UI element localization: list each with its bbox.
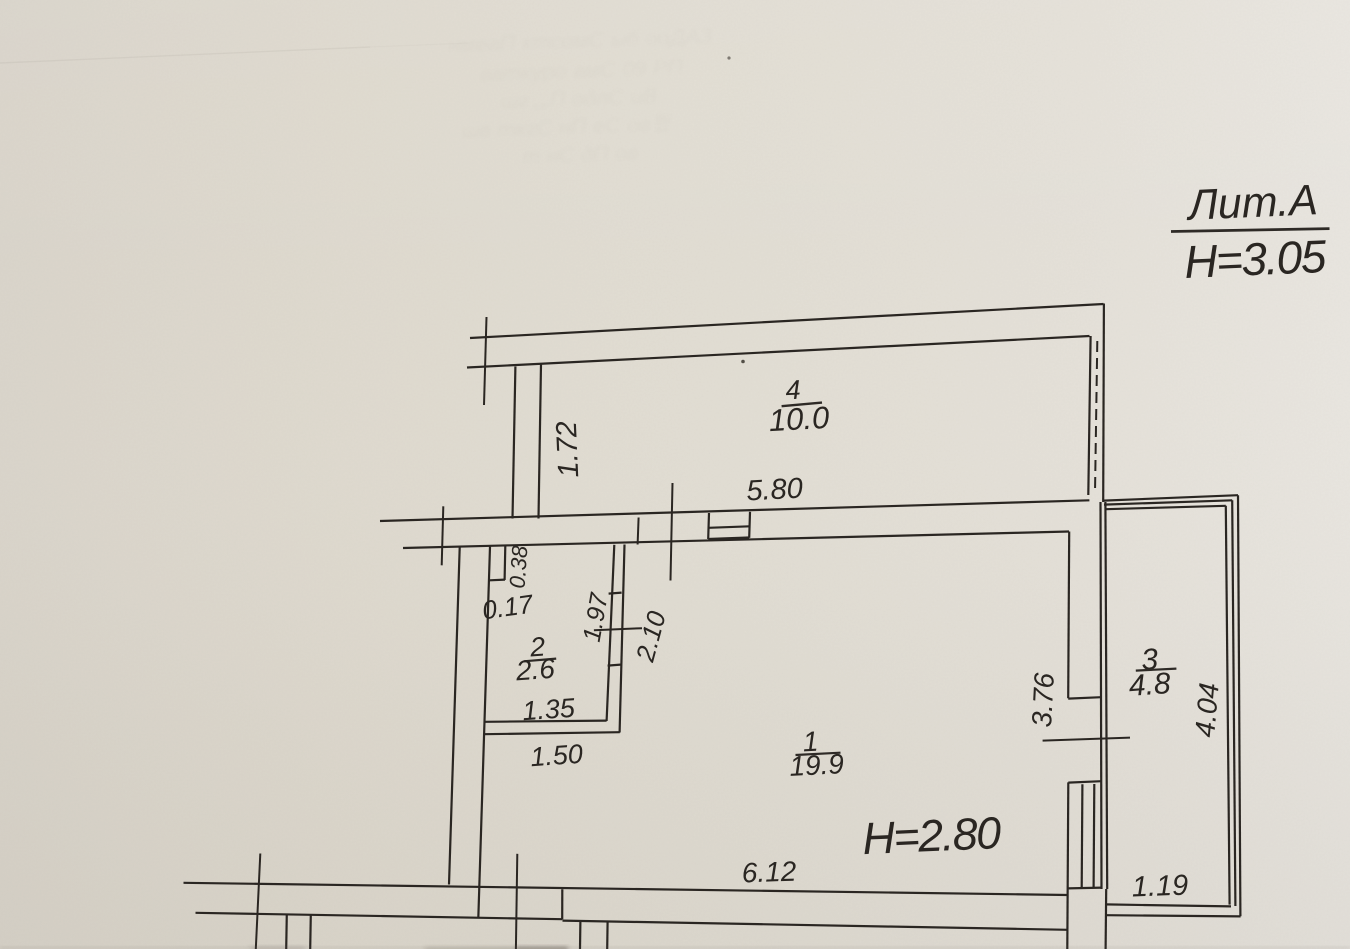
svg-text:4.04: 4.04 <box>1189 682 1225 739</box>
svg-text:0.38: 0.38 <box>505 544 533 589</box>
svg-text:19.9: 19.9 <box>789 748 845 782</box>
svg-text:т нС дП ов: т нС дП ов <box>522 140 639 169</box>
svg-text:2.6: 2.6 <box>514 653 556 687</box>
svg-text:10.0: 10.0 <box>768 400 830 438</box>
svg-text:1.19: 1.19 <box>1131 870 1189 904</box>
svg-text:4.8: 4.8 <box>1128 667 1172 703</box>
svg-text:5.80: 5.80 <box>746 473 804 508</box>
svg-text:6.12: 6.12 <box>741 856 797 889</box>
svg-text:1.50: 1.50 <box>529 739 584 773</box>
svg-text:3.76: 3.76 <box>1026 672 1060 728</box>
svg-text:Н=2.80: Н=2.80 <box>861 807 1002 864</box>
svg-text:1.35: 1.35 <box>521 693 576 727</box>
svg-text:Н=3.05: Н=3.05 <box>1183 230 1328 288</box>
svg-text:1.72: 1.72 <box>551 421 585 479</box>
svg-text:Лит.А: Лит.А <box>1184 176 1318 230</box>
